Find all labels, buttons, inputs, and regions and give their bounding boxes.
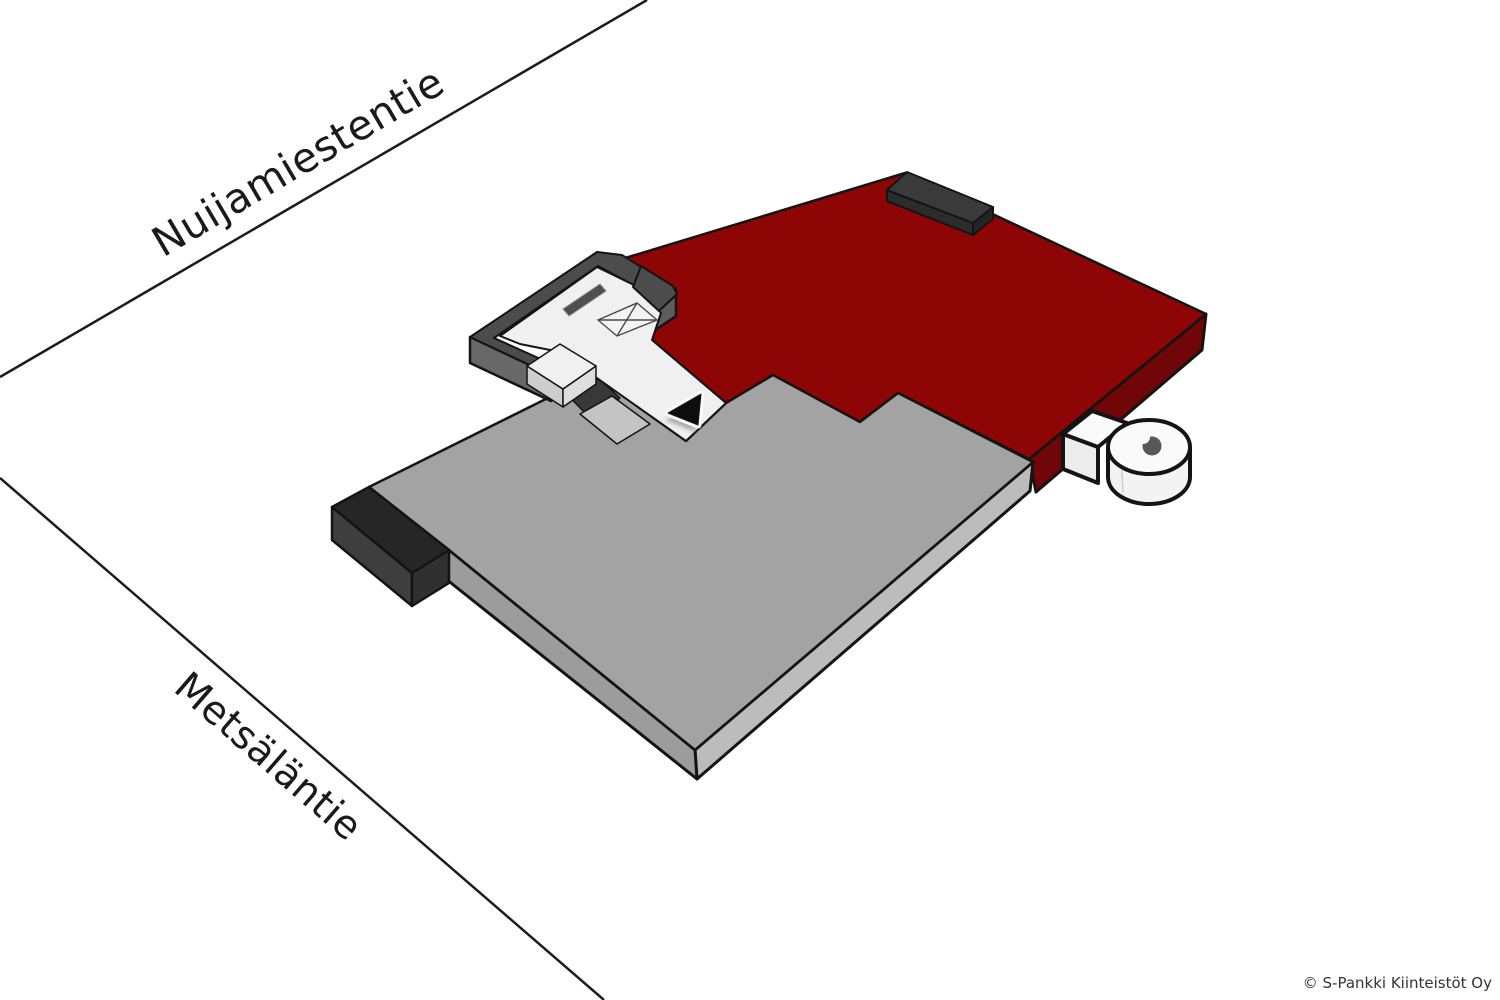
copyright-watermark: © S-Pankki Kiinteistöt Oy (1303, 974, 1492, 992)
stair-tower (1063, 411, 1190, 504)
site-plan-canvas: Nuijamiestentie Metsäläntie © S-Pankki K… (0, 0, 1500, 1000)
tower-hatch-bite (1136, 430, 1150, 444)
site-plan-drawing (0, 0, 1500, 1000)
